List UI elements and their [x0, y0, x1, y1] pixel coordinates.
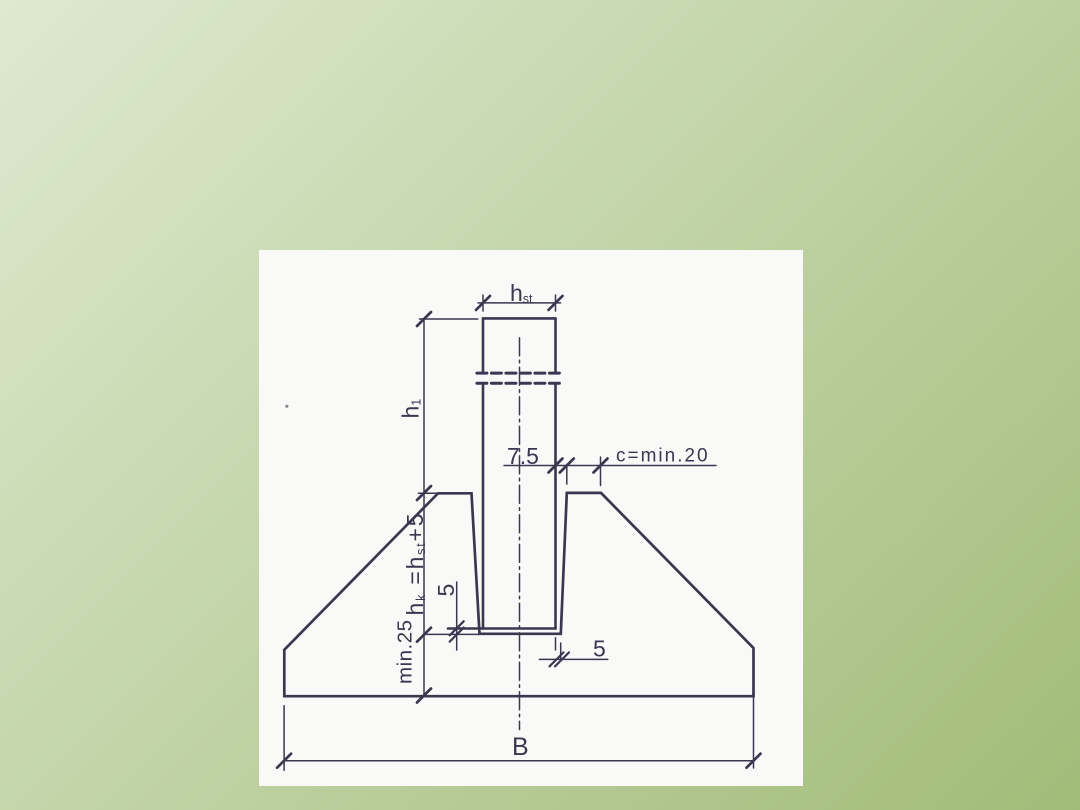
svg-text:c=min.20: c=min.20: [616, 446, 710, 467]
svg-text:hst: hst: [510, 280, 533, 306]
svg-text:h1: h1: [398, 399, 424, 419]
svg-text:min.25: min.25: [394, 619, 417, 684]
svg-text:5: 5: [593, 636, 606, 662]
svg-text:B: B: [512, 733, 529, 761]
svg-text:5: 5: [433, 584, 459, 597]
svg-text:7.5: 7.5: [507, 443, 539, 469]
svg-text:hk =hst+5: hk =hst+5: [402, 512, 428, 616]
